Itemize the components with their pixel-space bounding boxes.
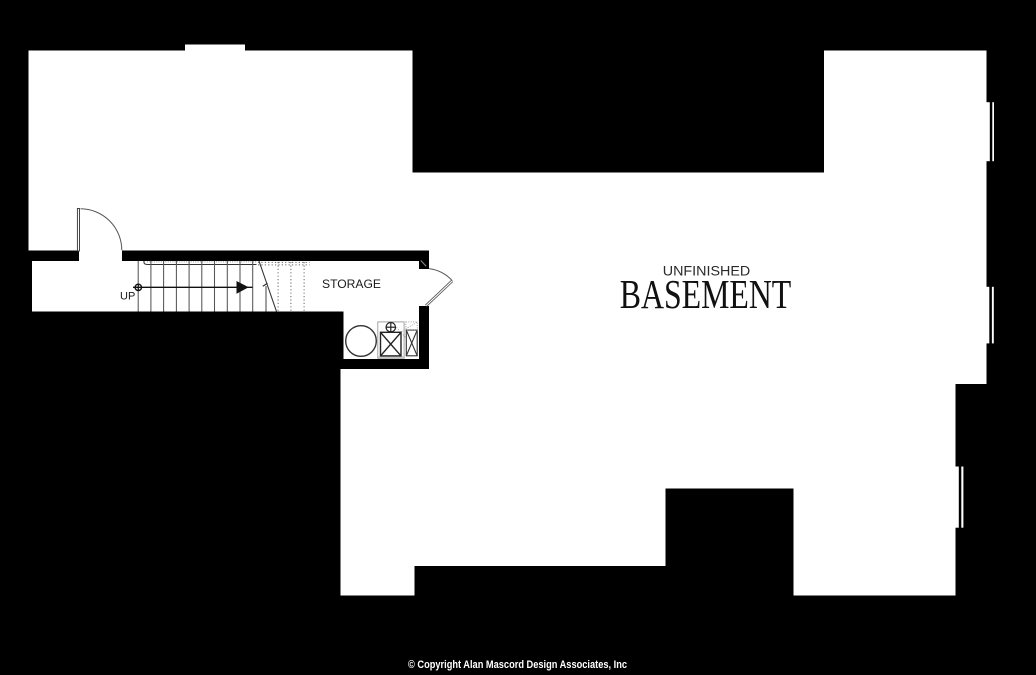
svg-text:STORAGE: STORAGE <box>322 277 381 291</box>
svg-text:© Copyright Alan Mascord Desig: © Copyright Alan Mascord Design Associat… <box>408 659 627 671</box>
svg-text:BASEMENT: BASEMENT <box>620 271 792 317</box>
svg-text:UP: UP <box>120 291 135 303</box>
